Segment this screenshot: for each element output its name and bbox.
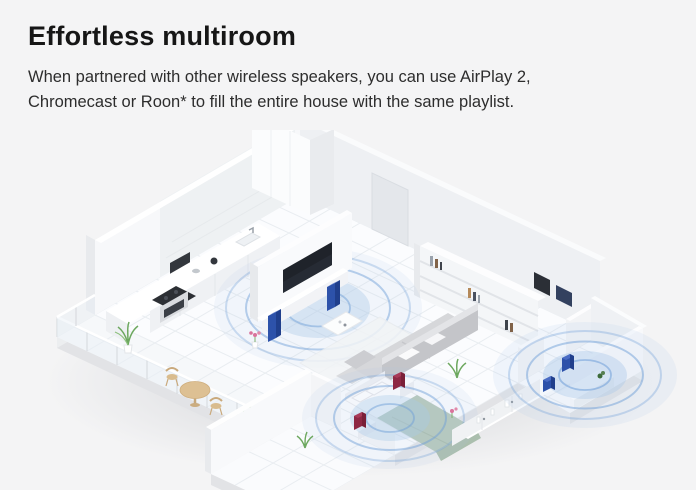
page-description: When partnered with other wireless speak…: [28, 65, 668, 115]
intro-text-block: Effortless multiroom When partnered with…: [28, 20, 668, 132]
floorplan-svg: [0, 130, 696, 490]
study-sound-waves: [493, 322, 677, 428]
page-title: Effortless multiroom: [28, 20, 668, 52]
description-line-2: Chromecast or Roon* to fill the entire h…: [28, 90, 668, 115]
description-line-1: When partnered with other wireless speak…: [28, 65, 668, 90]
kettle: [211, 258, 218, 265]
floorplan-illustration: [0, 130, 696, 490]
